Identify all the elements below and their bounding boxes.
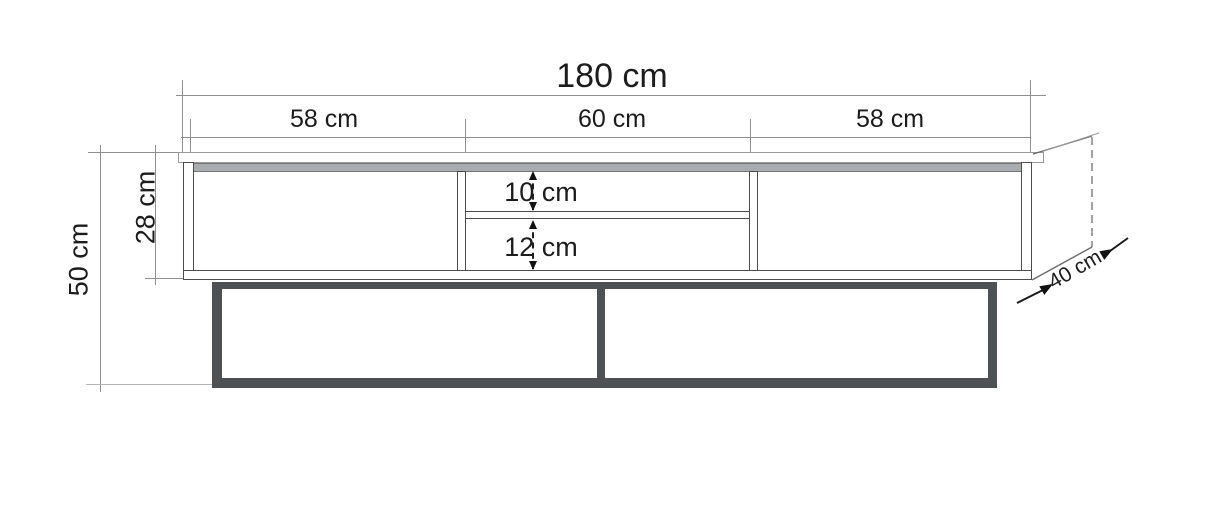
section-left-label: 58 cm (264, 107, 384, 132)
extension-line-base-bottom (86, 384, 219, 385)
sections-dimension-line (181, 137, 1030, 138)
carcass-height-dimension-line (155, 145, 156, 285)
section-tick-left (190, 119, 191, 153)
top-edge-strip (190, 163, 1023, 172)
side-panel-right (1021, 162, 1032, 280)
arrowhead-up-icon (529, 220, 537, 229)
section-middle-label: 60 cm (552, 107, 672, 132)
upper-opening-label: 10 cm (481, 179, 601, 206)
depth-top-board-edge (1044, 133, 1099, 151)
bottom-board (183, 270, 1032, 280)
total-height-dimension-line (100, 145, 101, 392)
total-width-label: 180 cm (532, 59, 692, 93)
base-frame-opening-left (222, 289, 597, 378)
dimension-diagram: 180 cm 58 cm 60 cm 58 cm 50 cm 28 cm 10 … (0, 0, 1214, 509)
base-frame-opening-right (605, 289, 988, 378)
arrowhead-down-icon (529, 261, 537, 270)
extension-line-right (1030, 80, 1031, 153)
total-height-label: 50 cm (66, 200, 93, 320)
total-width-dimension-line (176, 95, 1046, 96)
lower-opening-label: 12 cm (481, 234, 601, 261)
section-tick-mid-right (750, 119, 751, 153)
extension-line-top (88, 152, 183, 153)
section-tick-mid-left (465, 119, 466, 153)
divider-right (749, 171, 758, 271)
middle-shelf (465, 211, 750, 219)
top-board (178, 152, 1044, 163)
extension-line-left (182, 80, 183, 153)
extension-line-carcass-bottom (145, 278, 184, 279)
side-panel-left (183, 162, 194, 280)
depth-label: 40 cm (1026, 235, 1123, 303)
divider-left (457, 171, 466, 271)
section-right-label: 58 cm (830, 107, 950, 132)
